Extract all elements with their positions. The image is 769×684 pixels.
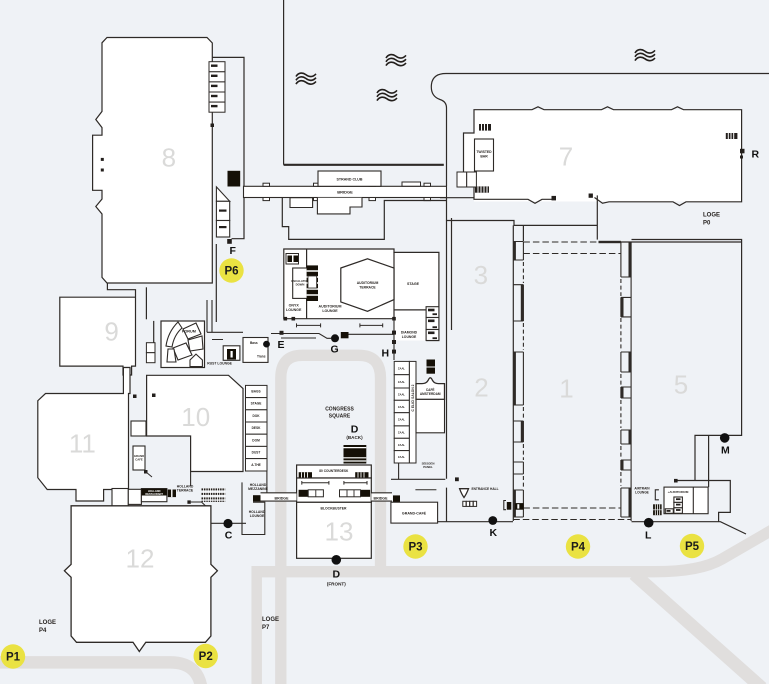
svg-text:P2: P2	[199, 651, 213, 663]
svg-text:ZAAL: ZAAL	[398, 431, 406, 435]
svg-text:ZAAL: ZAAL	[398, 455, 406, 459]
svg-text:LOGE: LOGE	[703, 213, 720, 219]
svg-text:BAR: BAR	[480, 155, 488, 159]
svg-text:TERRACE: TERRACE	[359, 285, 376, 289]
svg-text:ZAAL: ZAAL	[398, 380, 406, 384]
svg-text:AUDITORIUM: AUDITORIUM	[319, 305, 342, 309]
svg-text:DUST: DUST	[252, 451, 261, 455]
svg-text:P4: P4	[571, 542, 586, 554]
svg-text:R: R	[752, 149, 760, 161]
svg-text:BLOCKBUSTER: BLOCKBUSTER	[321, 507, 348, 511]
svg-text:P4: P4	[39, 628, 47, 634]
svg-text:8: 8	[162, 143, 176, 173]
svg-text:9: 9	[104, 317, 118, 347]
svg-text:ZAAL: ZAAL	[398, 443, 406, 447]
svg-text:5: 5	[674, 370, 688, 400]
svg-text:ZAAL: ZAAL	[398, 393, 406, 397]
svg-text:TERRACE: TERRACE	[177, 489, 194, 493]
svg-text:PANEL: PANEL	[423, 465, 433, 469]
svg-text:Trans: Trans	[257, 355, 266, 359]
svg-text:CONGRESS: CONGRESS	[325, 407, 354, 413]
svg-text:G: G	[331, 344, 339, 356]
svg-text:DESK: DESK	[252, 426, 262, 430]
svg-text:11: 11	[69, 429, 96, 459]
svg-text:Bass: Bass	[250, 341, 258, 345]
svg-text:1: 1	[559, 374, 573, 404]
svg-text:12: 12	[126, 544, 155, 574]
svg-text:FORUM: FORUM	[182, 330, 196, 334]
svg-text:H: H	[382, 348, 390, 360]
svg-text:C ELICI SALON 2: C ELICI SALON 2	[411, 384, 415, 411]
svg-text:ZAAL: ZAAL	[398, 405, 406, 409]
svg-text:P3: P3	[408, 542, 422, 554]
svg-text:BRIDGE: BRIDGE	[337, 190, 353, 195]
svg-text:LOGE: LOGE	[39, 620, 56, 626]
svg-text:K: K	[490, 527, 498, 539]
svg-text:P0: P0	[703, 221, 711, 227]
svg-text:STRAND CLUB: STRAND CLUB	[337, 178, 363, 182]
svg-text:C: C	[225, 530, 233, 542]
svg-text:7: 7	[559, 142, 573, 172]
svg-text:P6: P6	[224, 266, 238, 278]
svg-text:A.THE: A.THE	[251, 463, 261, 467]
svg-text:RESTAURANT: RESTAURANT	[145, 492, 163, 496]
svg-text:13: 13	[325, 517, 354, 547]
svg-text:(BACK): (BACK)	[346, 435, 363, 440]
svg-text:STAGE: STAGE	[407, 282, 420, 286]
svg-text:BRIDGE: BRIDGE	[275, 496, 290, 500]
svg-text:+AUDITORIUM: +AUDITORIUM	[668, 490, 689, 494]
svg-text:DOWN: DOWN	[296, 283, 305, 287]
svg-text:P7: P7	[262, 625, 270, 631]
svg-text:DOM: DOM	[252, 438, 260, 442]
svg-text:TWISTED: TWISTED	[476, 150, 492, 154]
svg-text:E: E	[278, 339, 285, 351]
svg-text:STAGE: STAGE	[251, 402, 262, 406]
svg-text:80 COUNTERDESK: 80 COUNTERDESK	[319, 469, 349, 473]
svg-text:LOUNGE: LOUNGE	[635, 491, 649, 495]
svg-text:(FRONT): (FRONT)	[327, 582, 346, 587]
svg-text:P5: P5	[685, 541, 700, 553]
svg-text:10: 10	[181, 402, 210, 432]
svg-text:ZAAL: ZAAL	[398, 418, 406, 422]
svg-text:ONYX: ONYX	[289, 304, 300, 308]
svg-text:LOUNGE: LOUNGE	[402, 335, 417, 339]
svg-text:ZAAL: ZAAL	[398, 367, 406, 371]
svg-text:AMSTERDAM: AMSTERDAM	[420, 392, 441, 396]
svg-text:ENTRANCE HALL: ENTRANCE HALL	[471, 487, 498, 491]
svg-text:LOGE: LOGE	[262, 617, 279, 623]
svg-text:P1: P1	[6, 652, 21, 664]
svg-text:BAGS: BAGS	[251, 390, 260, 394]
svg-text:L: L	[645, 530, 652, 542]
svg-text:AUDITORIUM: AUDITORIUM	[357, 281, 379, 285]
svg-text:LOUNGE: LOUNGE	[322, 309, 338, 313]
svg-text:2: 2	[474, 373, 488, 403]
svg-text:D: D	[333, 569, 341, 581]
svg-text:SQUARE: SQUARE	[329, 414, 351, 420]
svg-text:LOUNGE: LOUNGE	[286, 308, 302, 312]
svg-text:LOUNGE: LOUNGE	[250, 514, 265, 518]
svg-text:D: D	[351, 424, 359, 436]
svg-text:M: M	[721, 445, 730, 457]
svg-text:MEZZANINE: MEZZANINE	[248, 487, 269, 491]
svg-text:DOK: DOK	[252, 414, 260, 418]
svg-text:GRAND-CAFÉ: GRAND-CAFÉ	[402, 511, 427, 516]
svg-text:CAFE: CAFE	[135, 458, 143, 462]
svg-text:3: 3	[474, 260, 488, 290]
svg-text:BRIDGE: BRIDGE	[374, 496, 389, 500]
svg-text:F: F	[230, 245, 237, 257]
svg-text:RUST LOUNGE: RUST LOUNGE	[207, 361, 232, 365]
